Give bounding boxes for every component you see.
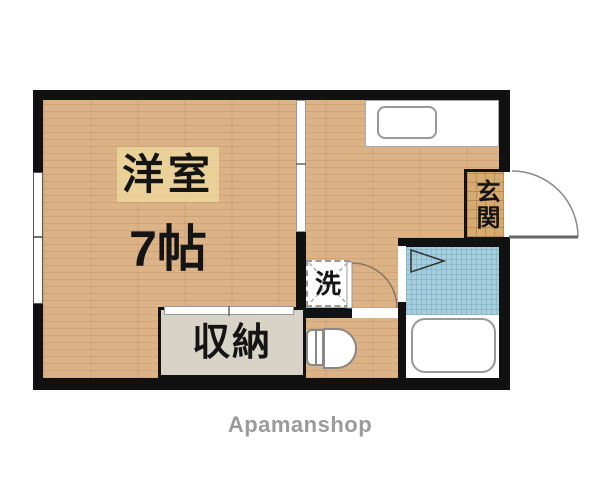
bathroom-doorway [398,246,406,302]
entrance-door-arc-icon [512,171,578,237]
wall-bottom [33,378,510,390]
floor-plan: 洋室 7帖 収納 玄関 洗 Apamanshop [0,0,600,480]
entrance-label: 玄関 [470,174,500,236]
bathroom-tile-floor [406,247,499,315]
sliding-door [296,100,306,232]
bathtub-icon [411,318,496,373]
kitchen-sink-icon [377,106,437,139]
toilet-tank-divider [315,330,317,365]
western-room-label: 洋室 [117,147,219,202]
closet-label: 収納 [161,313,303,373]
bathroom-wall-top [398,238,510,247]
wall-right-bottom [499,237,510,390]
wall-top [33,90,510,100]
room-size-label: 7帖 [108,218,228,280]
window [33,172,43,304]
toilet-doorway [352,308,398,318]
wall-right-top [499,90,510,172]
watermark-text: Apamanshop [0,412,600,438]
laundry-label: 洗 [306,262,350,307]
